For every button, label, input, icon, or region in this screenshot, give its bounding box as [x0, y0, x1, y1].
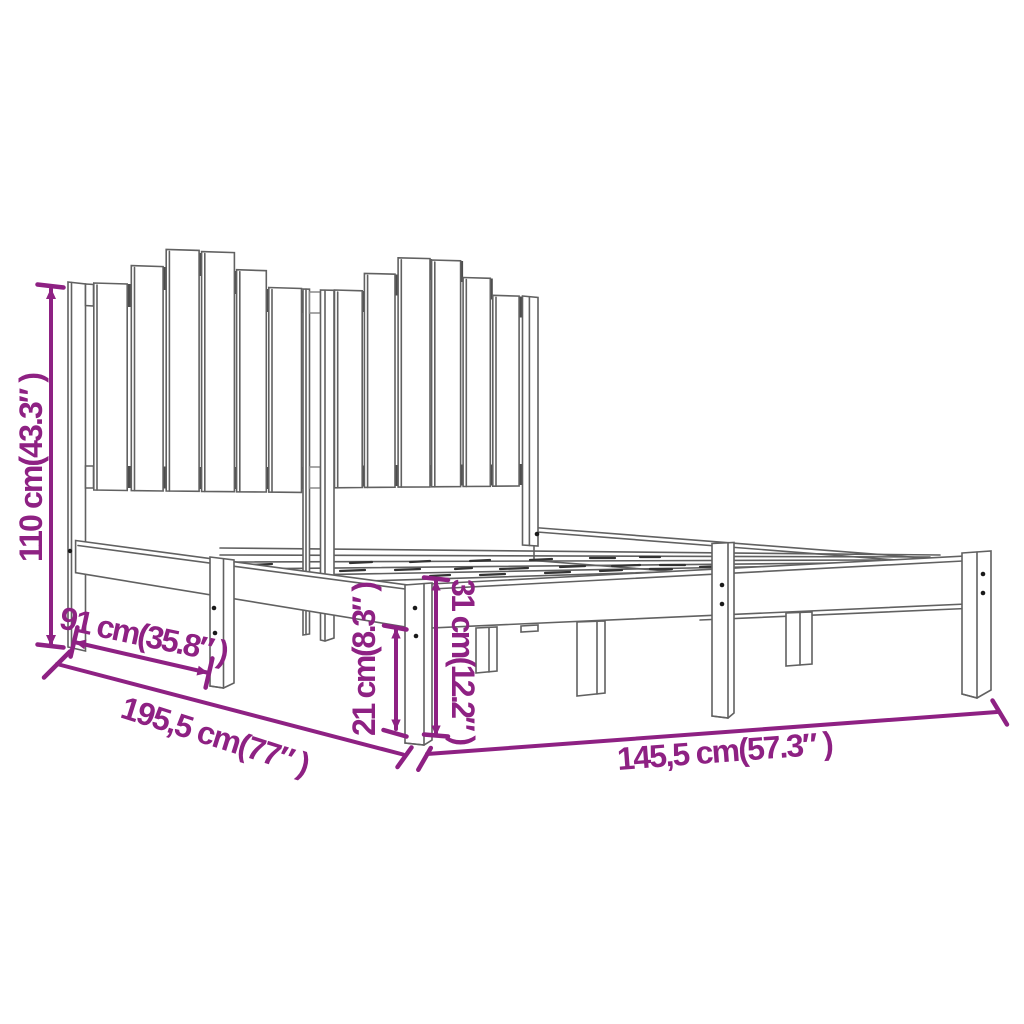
- svg-text:21 cm(8.3″ ): 21 cm(8.3″ ): [346, 581, 382, 736]
- svg-text:110 cm(43.3″ ): 110 cm(43.3″ ): [13, 372, 49, 562]
- svg-text:31 cm(12.2″ ): 31 cm(12.2″ ): [445, 579, 481, 746]
